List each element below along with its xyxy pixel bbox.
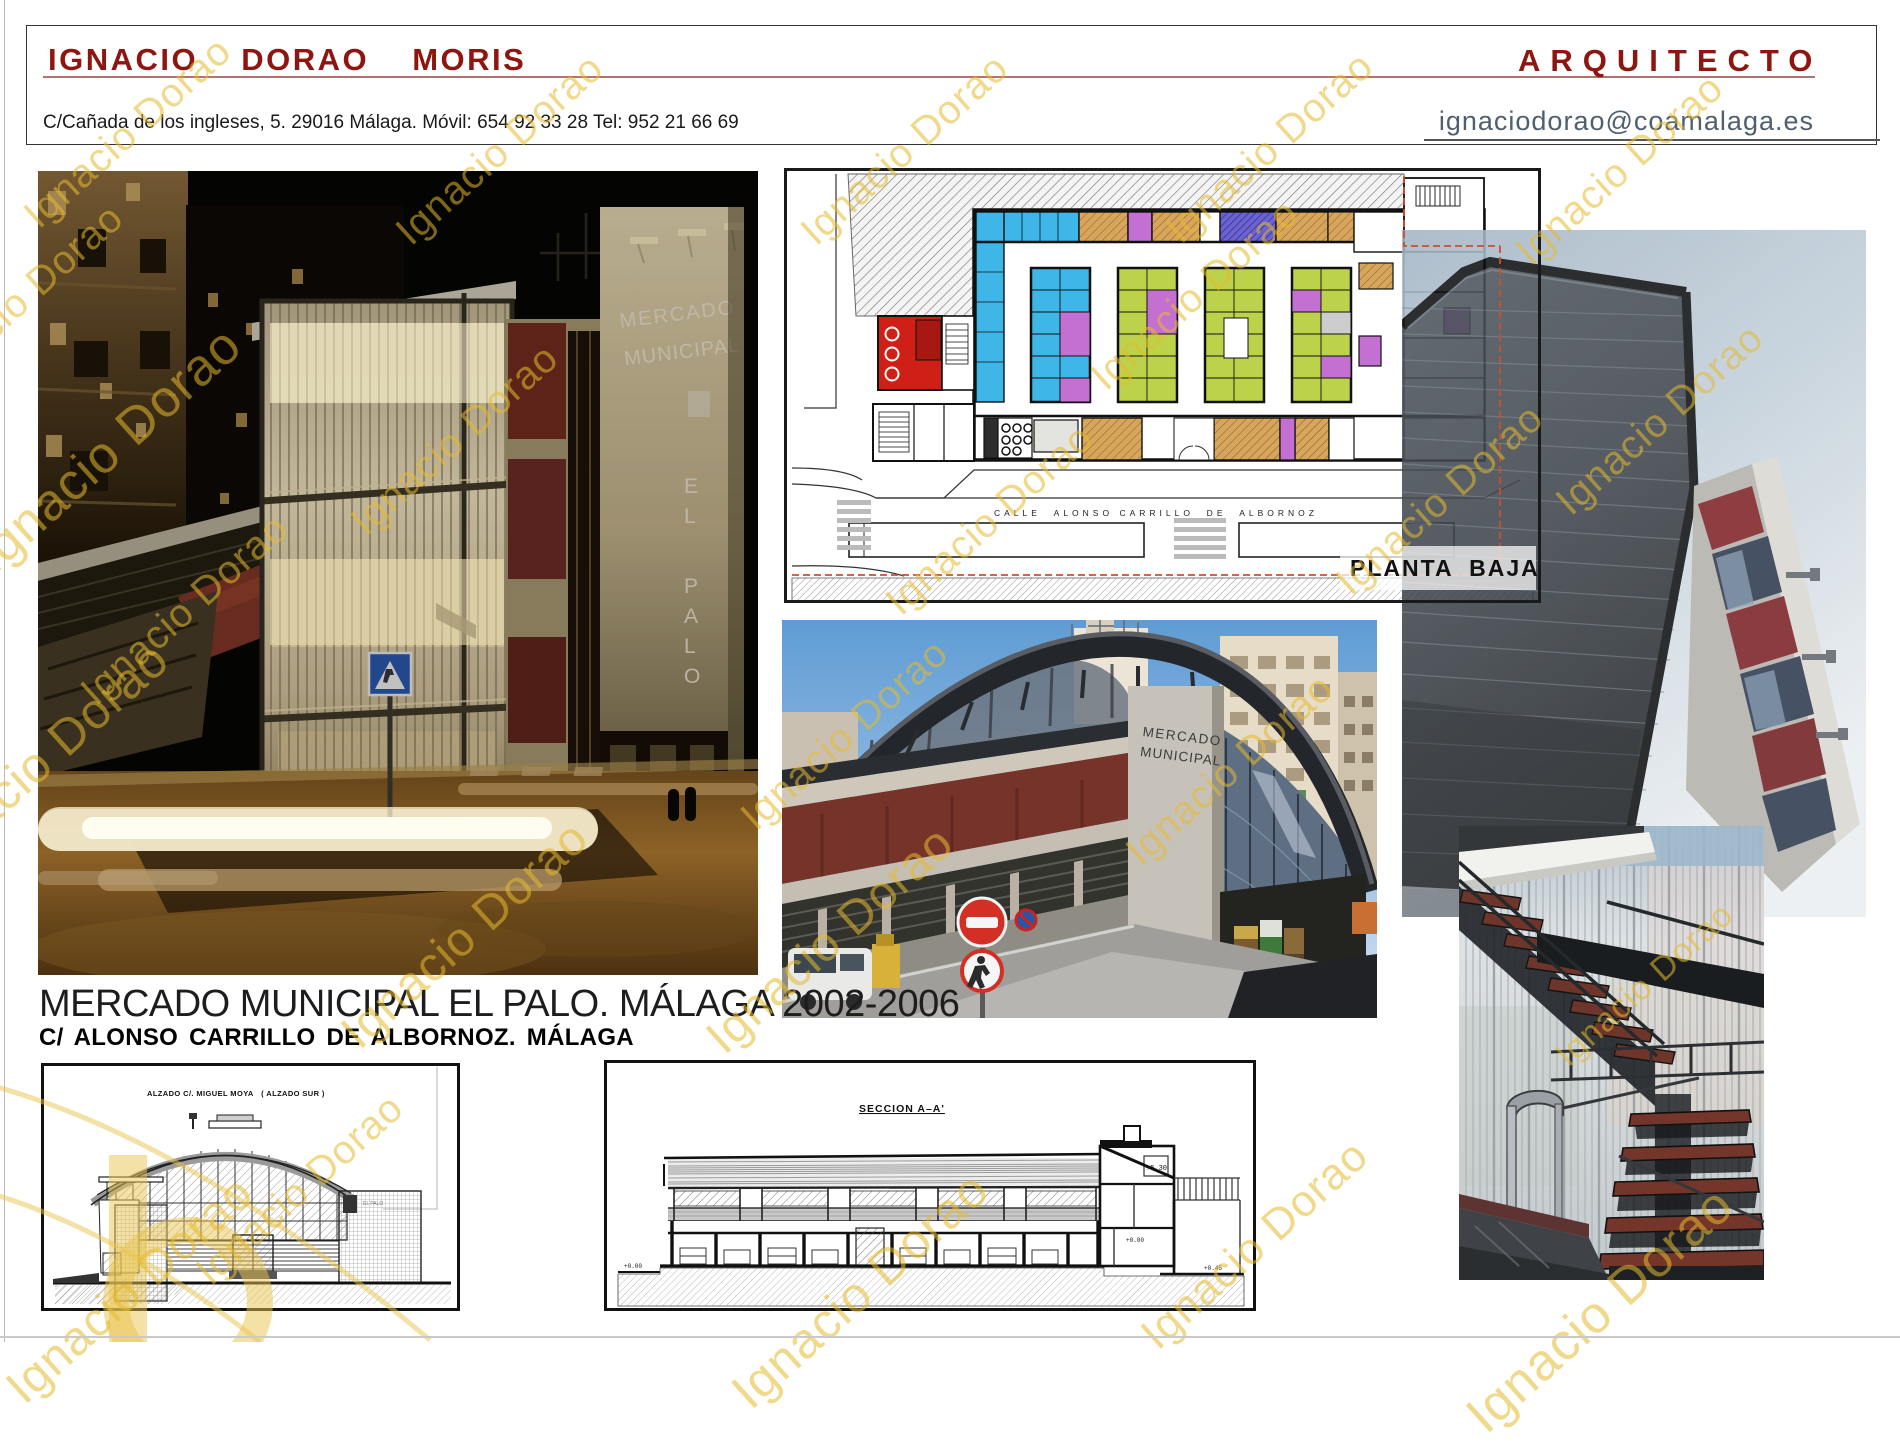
svg-text:+0.00: +0.00 [624, 1263, 642, 1270]
svg-text:+0.00: +0.00 [1126, 1237, 1144, 1244]
svg-text:+0.45: +0.45 [1204, 1265, 1222, 1272]
svg-text:PLANTA BAJA: PLANTA BAJA [1350, 555, 1540, 581]
svg-text:SECCION A–A': SECCION A–A' [859, 1103, 945, 1115]
